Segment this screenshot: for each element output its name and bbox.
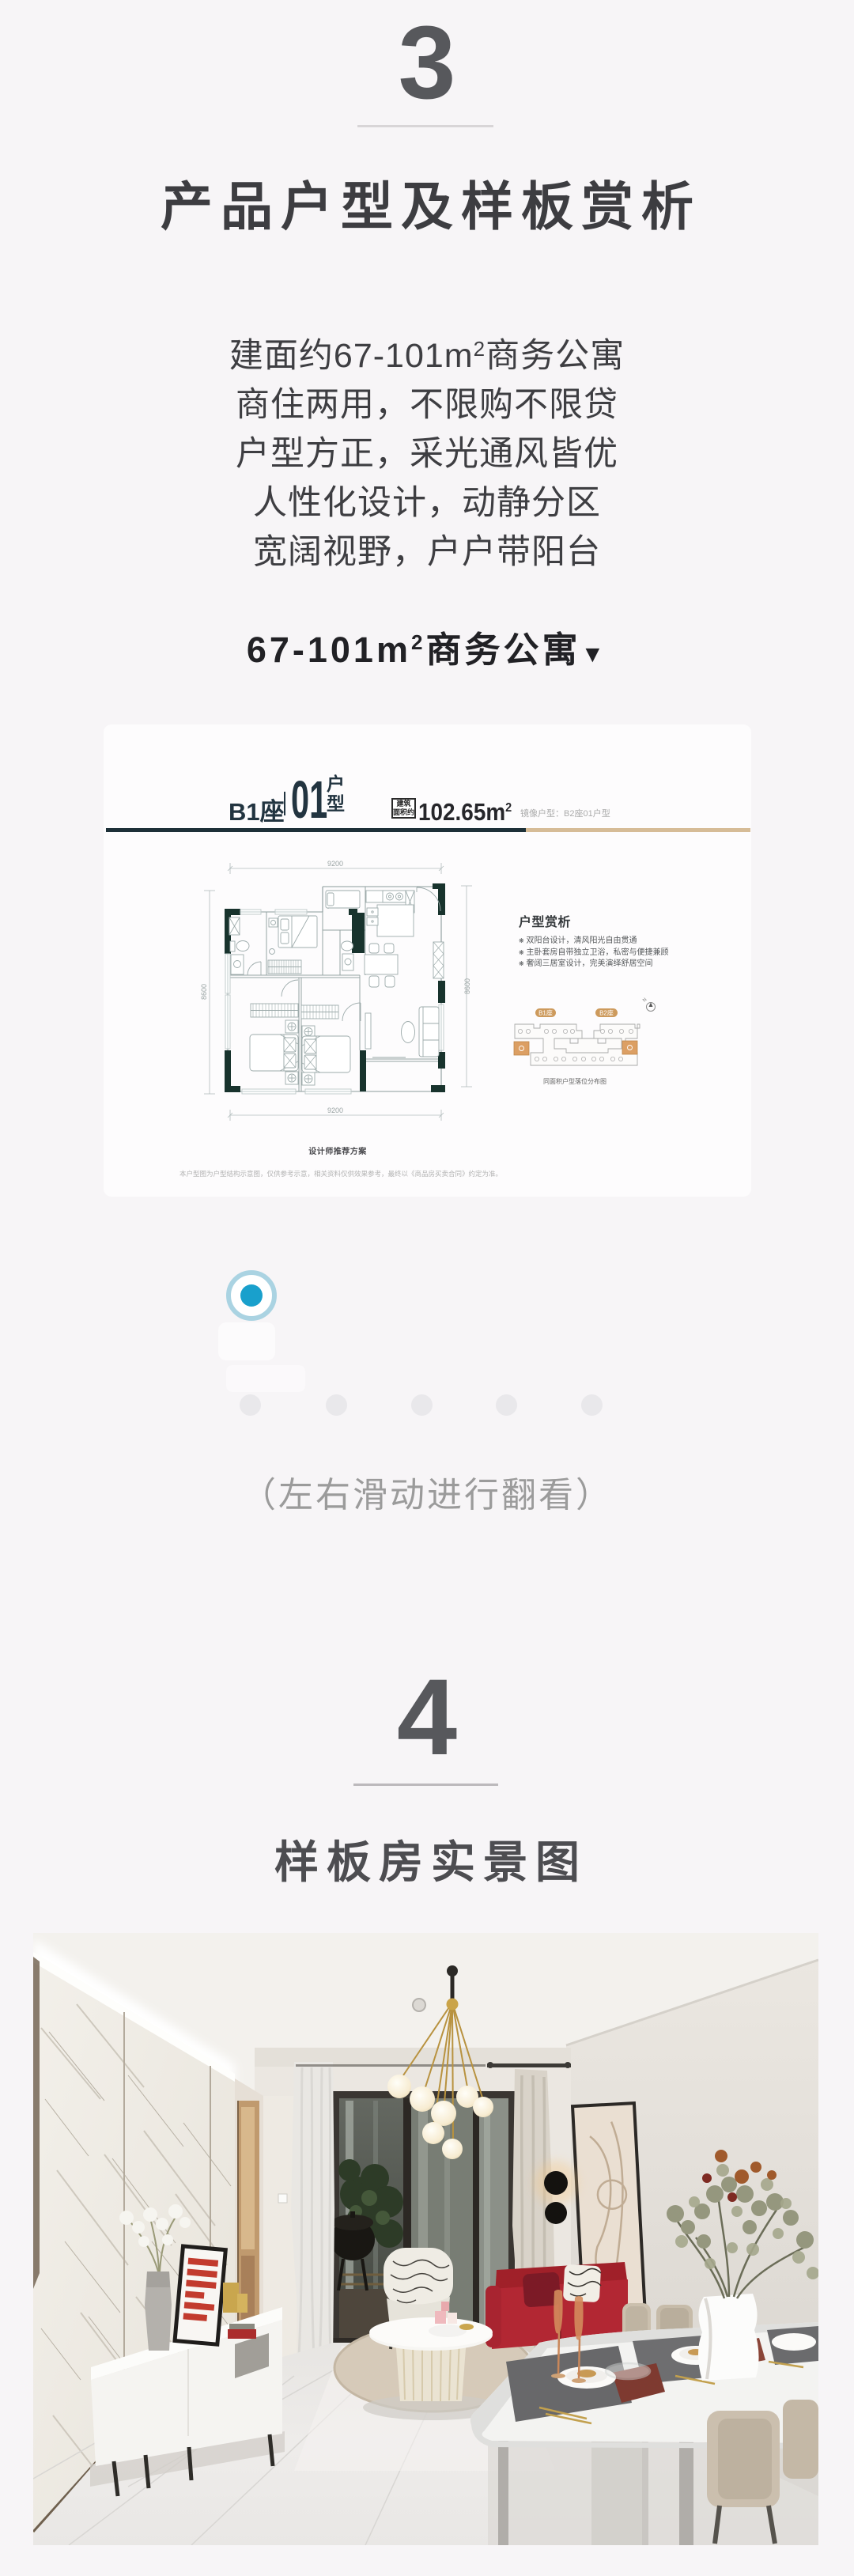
- svg-text:8600: 8600: [463, 978, 471, 994]
- svg-text:B2座: B2座: [599, 1009, 614, 1017]
- svg-text:N: N: [642, 997, 648, 1003]
- svg-text:9200: 9200: [327, 860, 343, 868]
- svg-text:8600: 8600: [200, 984, 208, 1000]
- svg-text:B1座: B1座: [538, 1009, 553, 1017]
- svg-text:9200: 9200: [327, 1106, 343, 1114]
